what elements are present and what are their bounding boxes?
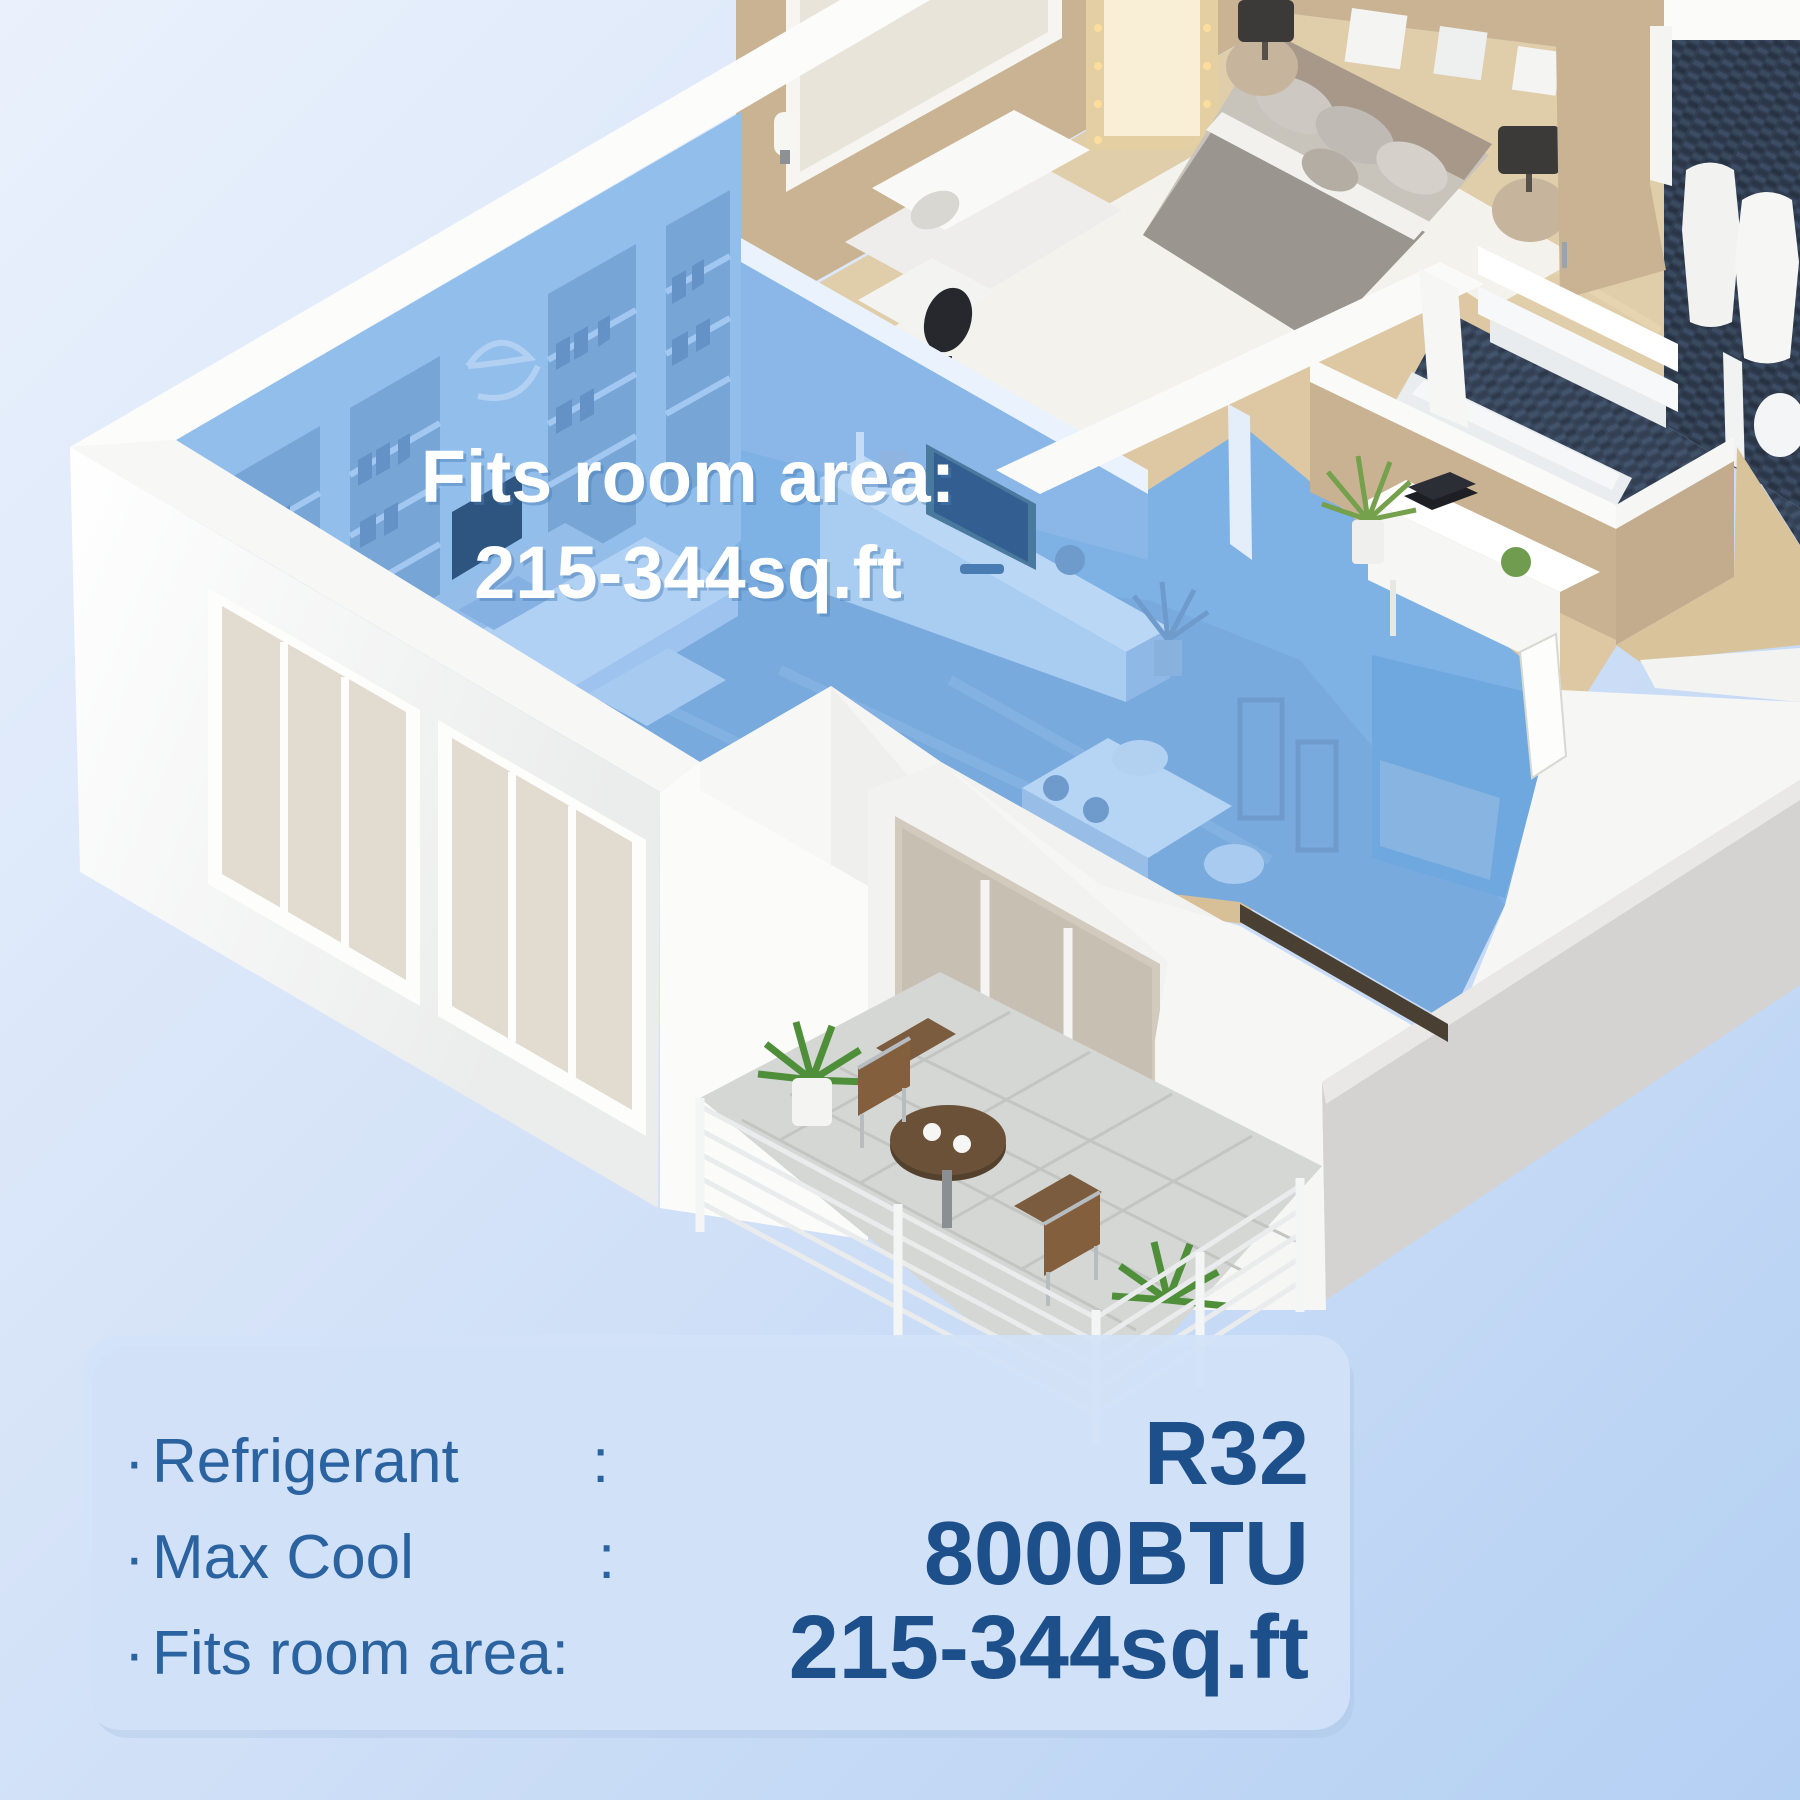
svg-text:Refrigerant: Refrigerant [152,1427,459,1496]
svg-text::: : [598,1523,615,1592]
svg-text:R32: R32 [1144,1404,1309,1504]
svg-text:Max Cool: Max Cool [152,1523,414,1592]
svg-text:Fits room area:: Fits room area: [152,1619,569,1688]
svg-text:8000BTU: 8000BTU [924,1504,1309,1604]
svg-text:215-344sq.ft: 215-344sq.ft [789,1598,1309,1698]
svg-text::: : [592,1427,609,1496]
svg-text:·: · [124,1523,145,1592]
svg-text:·: · [124,1619,145,1688]
svg-text:215-344sq.ft: 215-344sq.ft [474,531,902,614]
svg-text:Fits room area:: Fits room area: [421,435,956,518]
svg-text:·: · [124,1427,145,1496]
